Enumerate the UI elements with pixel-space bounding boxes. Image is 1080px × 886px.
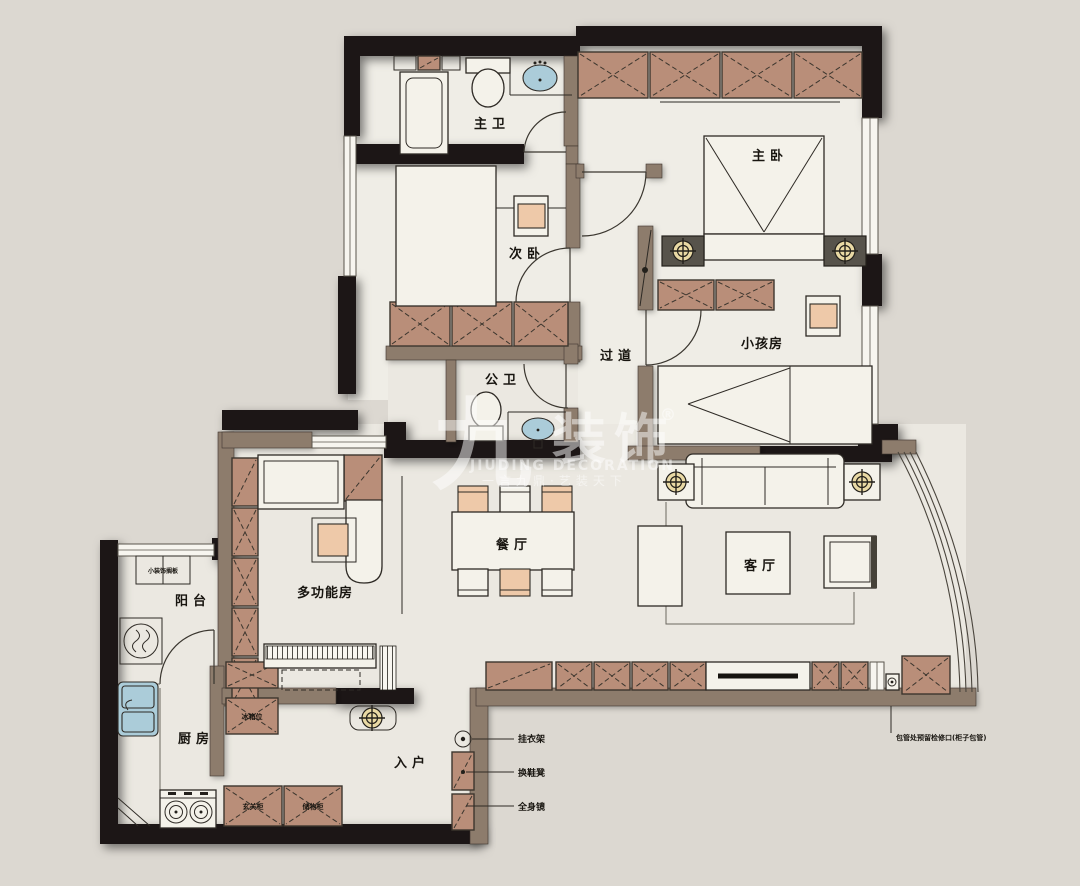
watermark-registered: ® (660, 405, 676, 424)
shower (400, 72, 448, 154)
dining-chair (542, 569, 572, 596)
desk (514, 196, 548, 236)
room-label-second-bedroom: 次卧 (509, 246, 545, 262)
room-label-living: 客厅 (744, 558, 780, 574)
bed (658, 366, 872, 444)
sofa (686, 454, 844, 508)
dining-chair (500, 569, 530, 596)
note-shoe-bench: 换鞋凳 (518, 767, 546, 779)
room-label-dining: 餐厅 (495, 537, 532, 553)
armchair (824, 536, 877, 588)
tv-unit (706, 662, 810, 690)
floor-plan: 小装饰搁板 (0, 0, 1080, 886)
dining-chair (542, 486, 572, 513)
watermark-english: JIUDING DECORATION (469, 458, 675, 474)
room-label-kitchen: 厨房 (178, 731, 214, 747)
pipe-access-fixture (886, 674, 899, 690)
room-label-master-bath: 主卫 (474, 116, 510, 132)
kids-room-wardrobe (658, 280, 774, 310)
label-entry-cabinet: 玄关柜 (243, 802, 264, 811)
label-storage-cabinet: 储物柜 (302, 802, 324, 811)
room-label-entry: 入户 (394, 755, 430, 771)
room-label-hallway: 过道 (600, 348, 636, 364)
nightstand (824, 236, 866, 266)
room-label-multi-function: 多功能房 (297, 585, 353, 601)
side-cabinet (638, 526, 682, 606)
room-label-master-bedroom: 主卧 (752, 148, 788, 164)
wall-panel-dot (642, 267, 648, 273)
room-label-kids-room: 小孩房 (741, 336, 783, 352)
desk (806, 296, 840, 336)
dining-chair (458, 569, 488, 596)
folding-rack (380, 646, 396, 690)
note-pipe-access: 包管处预留检修口(柜子包管) (896, 733, 986, 742)
second-bedroom-wardrobe (390, 302, 568, 346)
room-label-balcony: 阳台 (175, 593, 211, 609)
balcony-shelf-label: 小装饰搁板 (147, 567, 179, 575)
watermark-tagline: 一言九鼎·艺装天下 (482, 474, 627, 488)
master-wardrobe (578, 52, 862, 102)
label-fridge-spot: 冰箱位 (242, 712, 263, 721)
room-label-public-bath: 公卫 (485, 373, 521, 388)
curved-desk (346, 500, 382, 583)
note-full-mirror: 全身镜 (517, 801, 545, 813)
side-table (844, 464, 880, 500)
daybed (258, 455, 344, 509)
note-coat-rack: 挂衣架 (518, 733, 545, 745)
nightstand (662, 236, 704, 266)
kitchen-sink (118, 682, 158, 736)
gas-stove (160, 790, 216, 828)
